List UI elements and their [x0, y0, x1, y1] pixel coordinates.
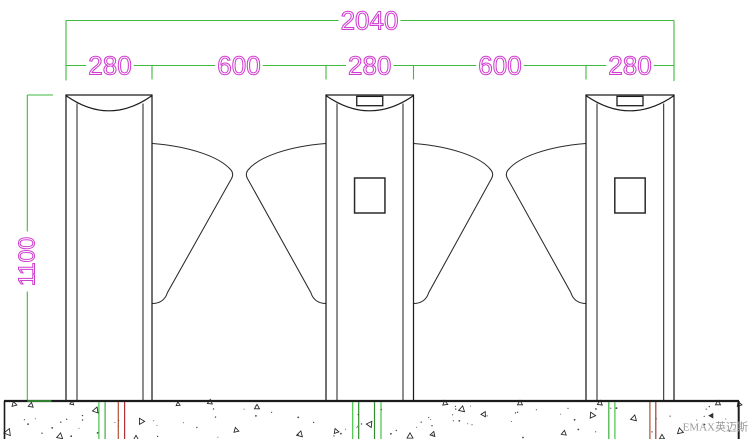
svg-text:280: 280 [348, 51, 391, 81]
svg-text:600: 600 [217, 51, 260, 81]
svg-text:EMAX英迈斯: EMAX英迈斯 [683, 420, 748, 434]
svg-text:280: 280 [88, 51, 131, 81]
svg-text:280: 280 [608, 51, 651, 81]
svg-text:1100: 1100 [14, 237, 40, 286]
svg-text:2040: 2040 [341, 6, 399, 36]
svg-text:600: 600 [478, 51, 521, 81]
